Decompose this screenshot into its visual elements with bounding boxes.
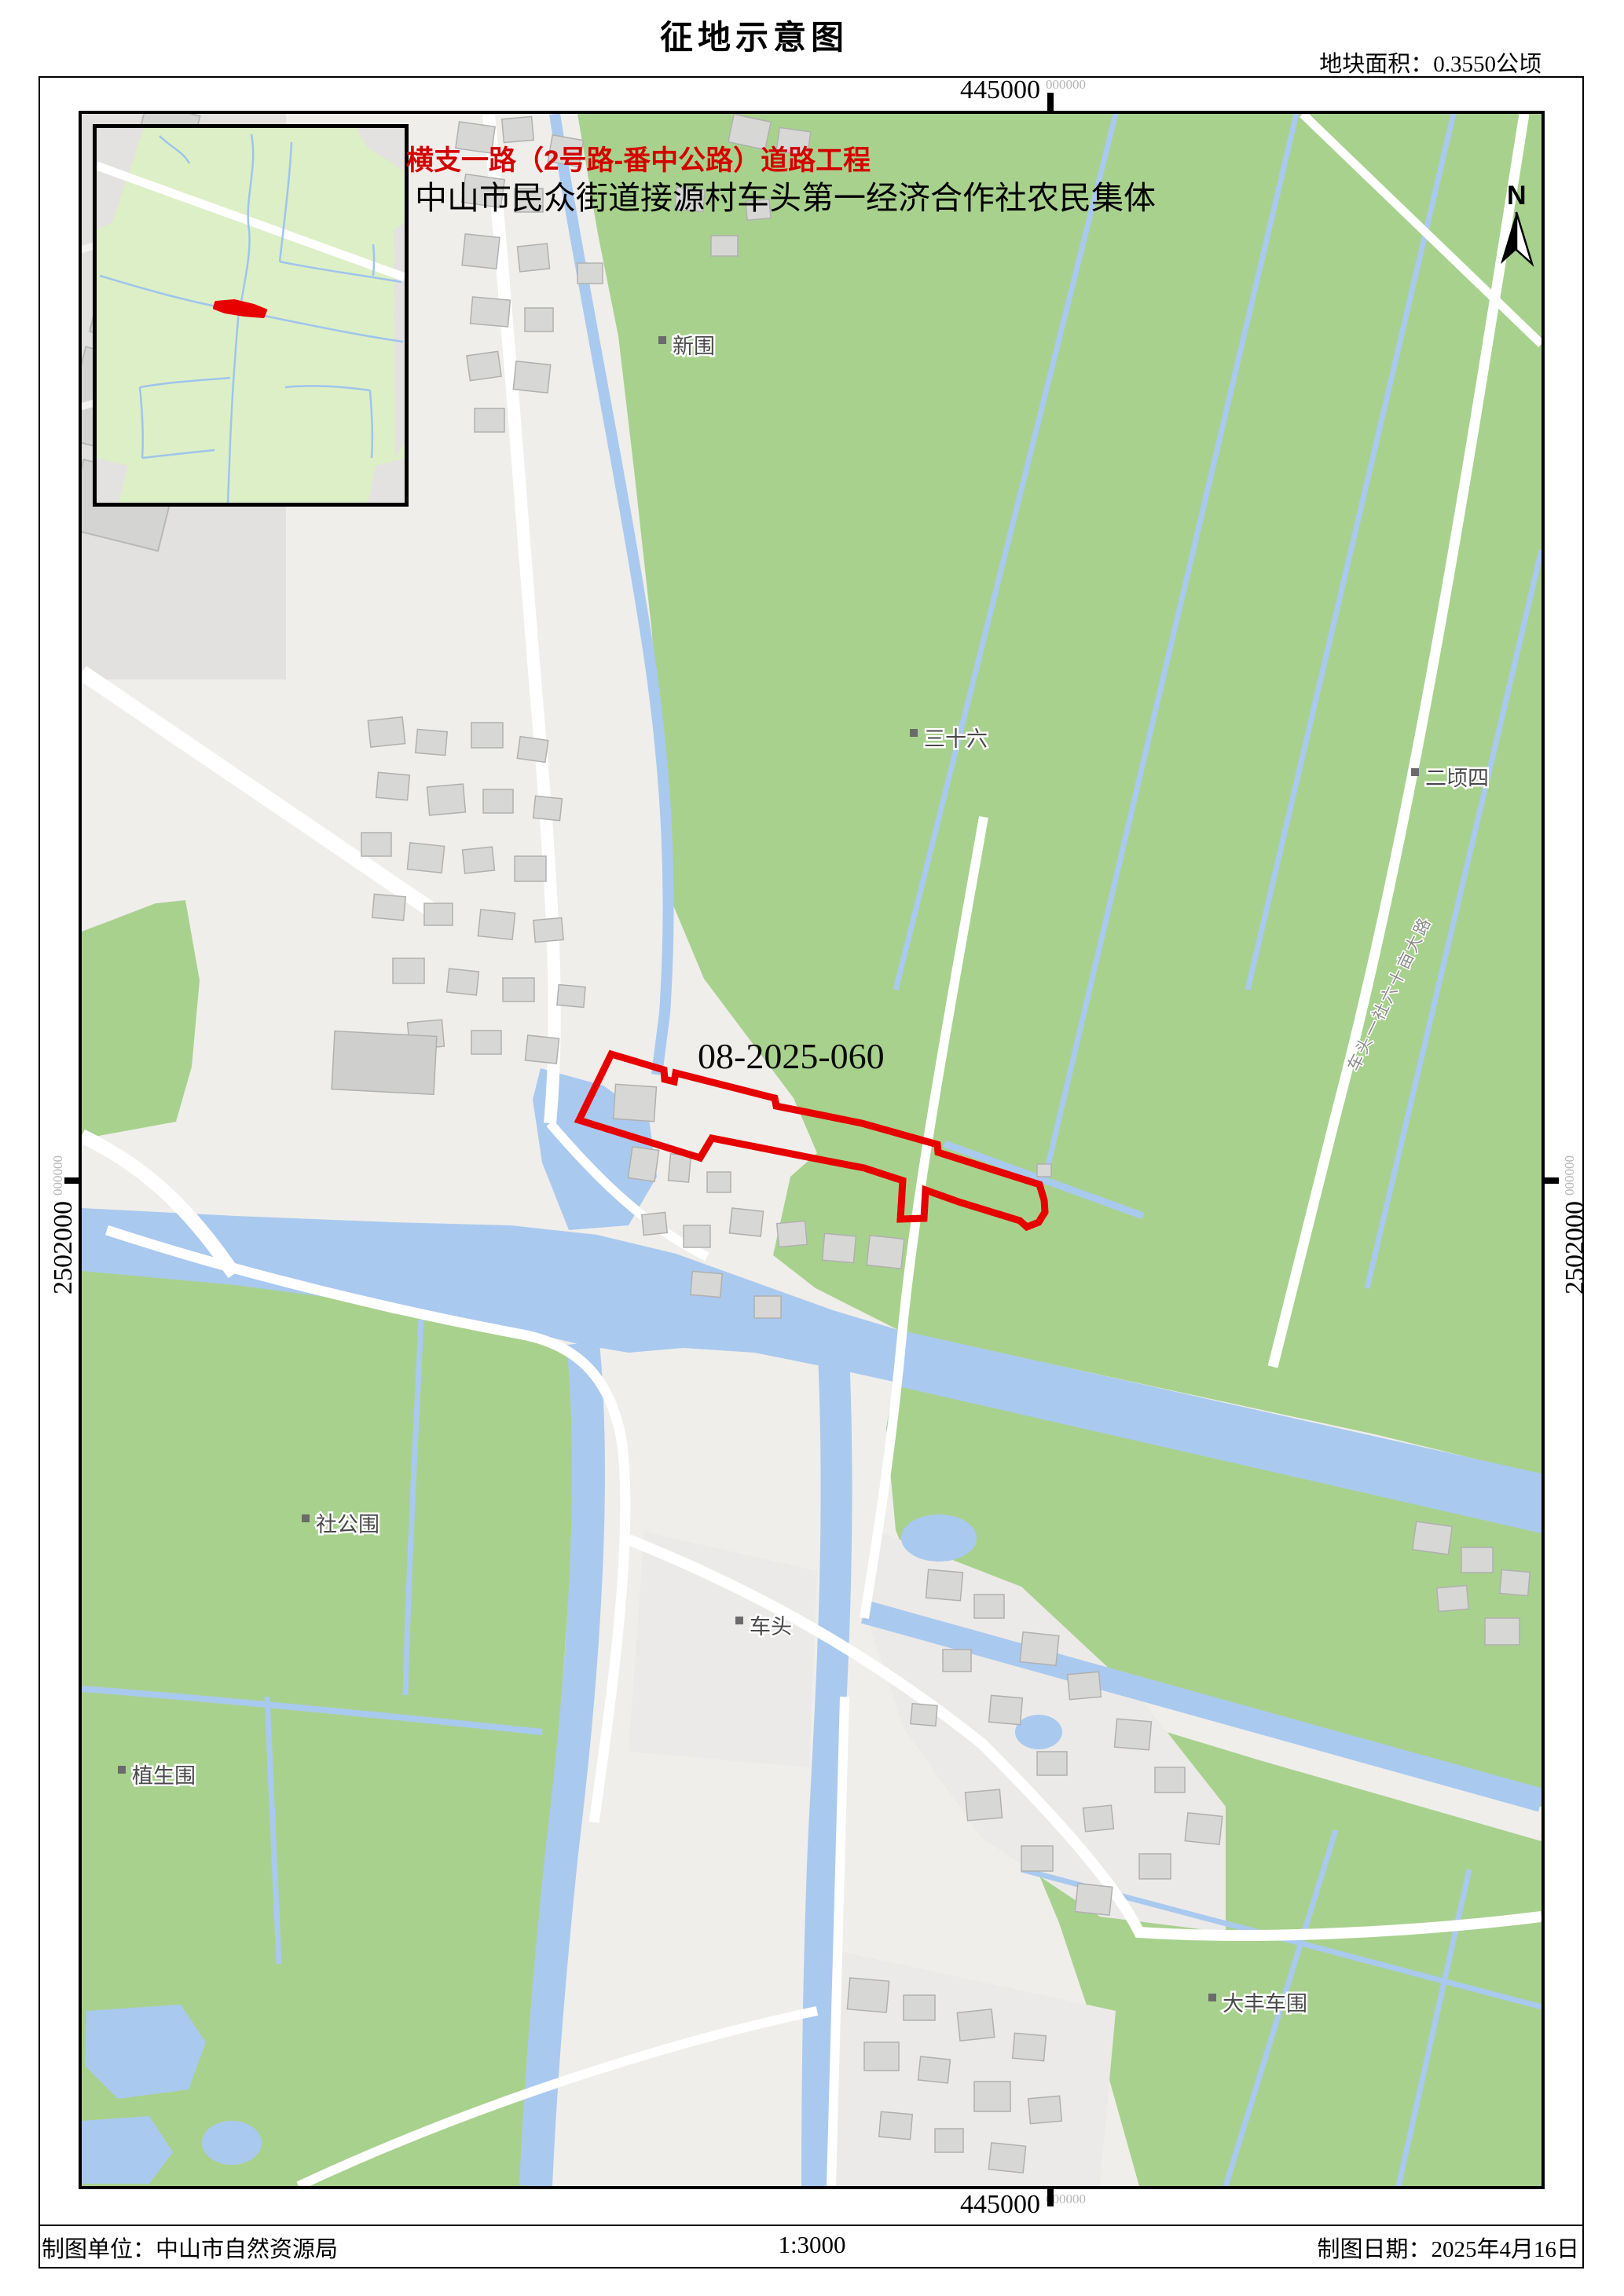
svg-text:社公围: 社公围	[316, 1513, 379, 1536]
svg-text:车头: 车头	[750, 1615, 792, 1639]
coordinate-top-sup: 000000	[1046, 77, 1086, 92]
svg-text:二顷四: 二顷四	[1425, 767, 1489, 790]
land-acquisition-map-page: 征地示意图 地块面积：0.3550公顷 445000000000 4450000…	[0, 0, 1624, 2296]
coordinate-left-value: 2502000	[49, 1201, 78, 1294]
inset-locator-map	[93, 124, 409, 507]
svg-text:三十六: 三十六	[924, 727, 988, 751]
landowner-label: 中山市民众街道接源村车头第一经济合作社农民集体	[415, 171, 1156, 218]
parcel-area-note: 地块面积：0.3550公顷	[1319, 46, 1542, 79]
coordinate-bottom-value: 445000	[960, 2190, 1040, 2219]
svg-text:植生围: 植生围	[132, 1764, 196, 1788]
inset-canvas	[97, 128, 405, 503]
coordinate-label-right: 2502000000000	[1560, 1155, 1590, 1294]
coordinate-right-value: 2502000	[1560, 1201, 1589, 1294]
grid-tick-top	[1047, 93, 1054, 114]
grid-tick-right	[1542, 1177, 1559, 1184]
grid-tick-bottom	[1047, 2186, 1054, 2206]
parcel-code-label: 08-2025-060	[698, 1036, 885, 1076]
north-letter: N	[1507, 181, 1527, 211]
coordinate-top-value: 445000	[960, 75, 1040, 104]
coordinate-label-top: 445000000000	[960, 75, 1086, 105]
footer-date: 制图日期：2025年4月16日	[1317, 2231, 1579, 2264]
coordinate-label-left: 2502000000000	[49, 1155, 79, 1294]
coordinate-right-sup: 000000	[1562, 1155, 1577, 1196]
svg-text:大丰车围: 大丰车围	[1223, 1992, 1307, 2016]
page-title: 征地示意图	[0, 11, 1509, 59]
coordinate-left-sup: 000000	[50, 1155, 65, 1196]
grid-tick-left	[64, 1177, 82, 1184]
footer-separator	[38, 2225, 1584, 2226]
svg-text:新围: 新围	[673, 335, 715, 358]
place-label-dafengchewei: 大丰车围	[1208, 1992, 1307, 2016]
coordinate-label-bottom: 445000000000	[960, 2190, 1086, 2220]
